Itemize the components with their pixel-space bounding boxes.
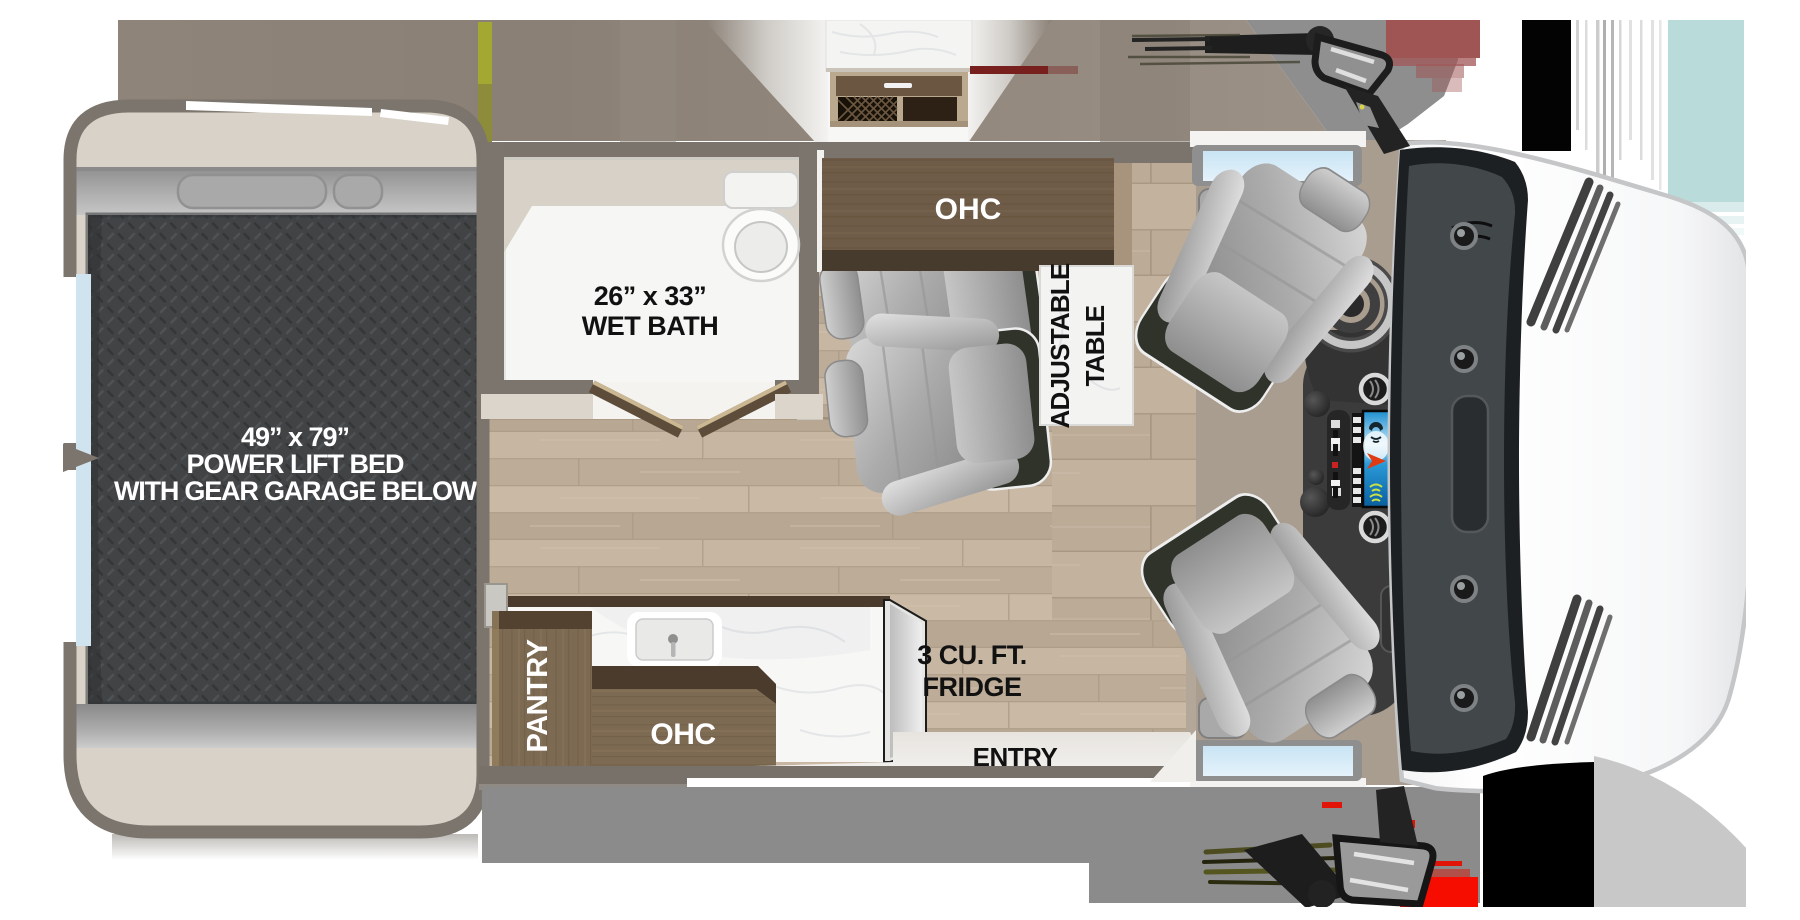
svg-text:OHC: OHC	[650, 718, 715, 751]
svg-text:WITH GEAR GARAGE BELOW: WITH GEAR GARAGE BELOW	[114, 476, 478, 506]
svg-text:26” x 33”: 26” x 33”	[594, 281, 707, 311]
svg-text:PANTRY: PANTRY	[522, 639, 554, 752]
svg-text:ADJUSTABLE: ADJUSTABLE	[1045, 263, 1075, 428]
svg-text:POWER LIFT BED: POWER LIFT BED	[187, 449, 404, 479]
svg-text:TABLE: TABLE	[1080, 305, 1110, 386]
svg-text:49” x 79”: 49” x 79”	[241, 422, 349, 452]
svg-text:WET BATH: WET BATH	[582, 311, 718, 341]
svg-text:OHC: OHC	[935, 193, 1002, 226]
svg-text:FRIDGE: FRIDGE	[922, 672, 1021, 702]
svg-text:3 CU. FT.: 3 CU. FT.	[917, 640, 1027, 670]
